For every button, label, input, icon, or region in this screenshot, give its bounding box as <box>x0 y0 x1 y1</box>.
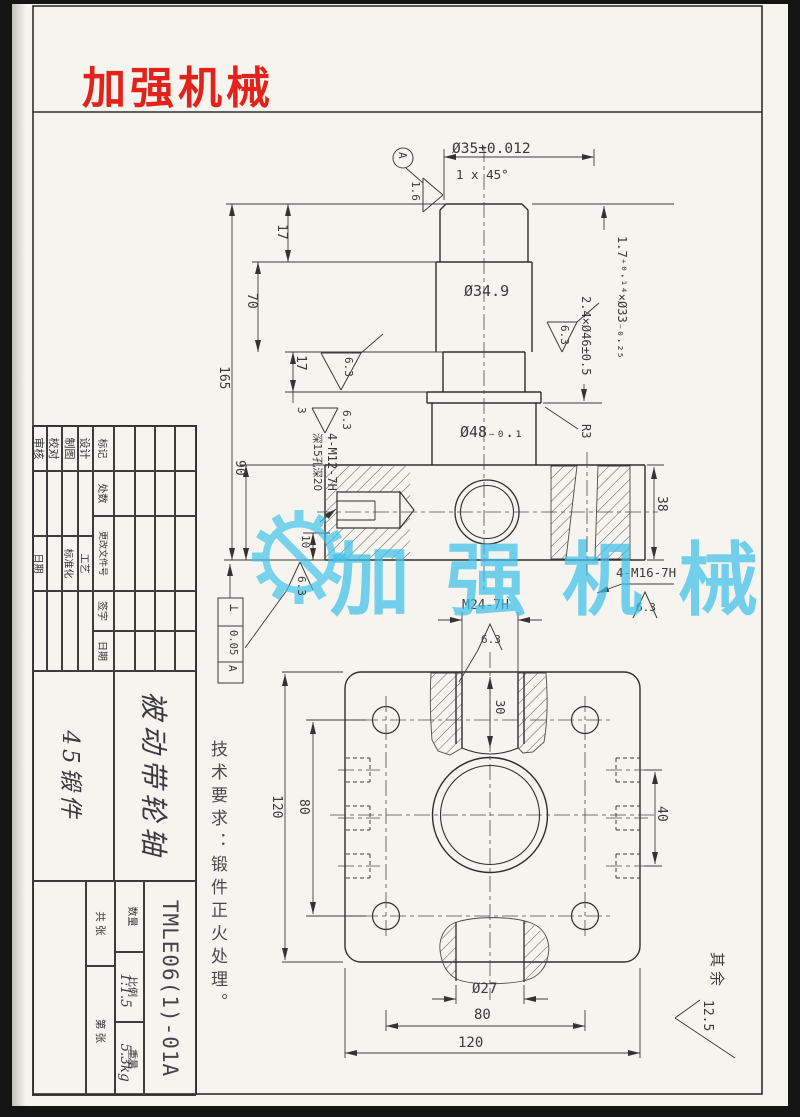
dim-chamfer: 1 x 45° <box>456 169 509 182</box>
title-block: 标记 处数 更改文件号 签字 日期 设计 工艺 制图 标准化 校对 审核 日期 … <box>33 425 197 1095</box>
technical-note: 技术要求：锻件正火处理。 <box>205 740 230 1040</box>
tolerance-datum: A <box>227 665 238 672</box>
rough-leader <box>245 590 287 648</box>
qty-label: 数量 <box>126 907 141 927</box>
dim-17-mid: 17 <box>294 355 307 371</box>
table-cell <box>32 471 47 536</box>
table-cell <box>175 591 196 631</box>
dim-3: 3 <box>296 407 307 414</box>
table-cell <box>175 631 196 671</box>
table-cell <box>114 426 135 471</box>
table-cell <box>32 591 47 671</box>
r3-leader <box>545 407 578 429</box>
rest-roughness-label: 其余 <box>709 952 724 990</box>
table-cell <box>155 471 175 516</box>
dim-30: 30 <box>494 700 506 714</box>
dim-17-top: 17 <box>275 224 288 240</box>
roughness-value: 6.3 <box>296 576 307 596</box>
rev-label: 标记 <box>93 426 114 471</box>
dim-dia349: Ø34.9 <box>464 284 509 299</box>
table-cell <box>155 516 175 591</box>
part-name: 被动带轮轴 <box>114 671 196 881</box>
symbols-bottom <box>478 624 735 1058</box>
table-cell <box>32 881 86 1096</box>
roughness-value: 1.6 <box>410 181 421 201</box>
material: 45锻件 <box>32 671 114 881</box>
sheet-no-cell: 第 张 <box>86 966 115 1096</box>
table-cell <box>114 591 135 631</box>
table-cell <box>175 471 196 516</box>
dim-10: 10 <box>300 535 311 548</box>
scale-cell: 比例 1:1.5 <box>115 952 144 1022</box>
bottom-view <box>345 672 640 984</box>
sig-label: 制图 <box>62 426 78 471</box>
dim-120-bottom: 120 <box>458 1036 483 1050</box>
thread-m12: 4-M12-7H <box>326 433 338 491</box>
thread-m12-note: 深15孔深20 <box>312 433 323 491</box>
dim-38: 38 <box>655 496 668 512</box>
table-cell <box>114 516 135 591</box>
dim-r3: R3 <box>580 424 592 438</box>
table-cell <box>47 591 62 671</box>
sig-label: 设计 <box>78 426 93 471</box>
dim-80-bottom: 80 <box>474 1008 491 1022</box>
roughness-value: 6.3 <box>559 325 570 345</box>
roughness-value: 6.3 <box>343 357 354 377</box>
dim-groove17: 1.7⁺⁰·¹⁴×Ø33₋₀.₂₅ <box>616 236 628 359</box>
scale-value: 1:1.5 <box>117 973 133 1008</box>
datum-label: A <box>397 152 408 159</box>
front-view <box>325 204 645 560</box>
m24-breakout <box>430 673 547 755</box>
table-cell <box>62 471 78 536</box>
table-cell <box>155 591 175 631</box>
roughness-value: 6.3 <box>481 634 501 645</box>
table-cell <box>78 591 93 671</box>
tolerance-symbol: ⊥ <box>227 604 240 612</box>
weight-value: 5.3kg <box>117 1043 133 1081</box>
table-cell <box>114 471 135 516</box>
bore-breakout <box>440 918 549 984</box>
dim-120-left: 120 <box>270 795 283 818</box>
table-cell <box>62 591 78 671</box>
scanned-drawing-page: Ø35±0.012 1 x 45° A 1.6 17 70 165 17 3 9… <box>0 0 800 1117</box>
dim-dia27: Ø27 <box>472 982 497 996</box>
sig-label: 工艺 <box>78 536 93 591</box>
table-cell <box>175 426 196 471</box>
dim-80-left: 80 <box>297 799 310 815</box>
dim-dia35: Ø35±0.012 <box>452 142 531 157</box>
sig-label: 标准化 <box>62 536 78 591</box>
roughness-icon <box>312 408 338 433</box>
table-cell <box>155 631 175 671</box>
table-cell <box>135 591 155 631</box>
company-logo: 加强机械 <box>82 52 274 116</box>
dim-dia48: Ø48₋₀.₁ <box>460 425 523 440</box>
sig-label <box>47 536 62 591</box>
rev-label: 日期 <box>93 631 114 671</box>
table-cell <box>78 471 93 536</box>
roughness-icon <box>423 178 443 212</box>
sheet-total-cell: 共 张 <box>86 881 115 966</box>
dim-70: 70 <box>245 293 258 309</box>
sig-label: 审核 <box>32 426 47 471</box>
sig-label: 校对 <box>47 426 62 471</box>
table-cell <box>135 631 155 671</box>
table-cell <box>175 516 196 591</box>
rev-label: 处数 <box>93 471 114 516</box>
side-holes <box>346 758 640 878</box>
qty-cell: 数量 <box>115 881 144 952</box>
sig-label: 日期 <box>32 536 47 591</box>
drawing-number: TMLE06(1)-01A <box>144 881 196 1096</box>
dim-165: 165 <box>217 366 230 389</box>
rev-label: 签字 <box>93 591 114 631</box>
table-cell <box>47 471 62 536</box>
table-cell <box>135 471 155 516</box>
table-cell <box>135 426 155 471</box>
roughness-value: 6.3 <box>341 410 352 430</box>
watermark-text: 加强机械 <box>330 516 794 632</box>
table-cell <box>155 426 175 471</box>
dim-90: 90 <box>233 460 246 476</box>
table-cell <box>135 516 155 591</box>
rev-label: 更改文件号 <box>93 516 114 591</box>
table-cell <box>114 631 135 671</box>
weight-cell: 重量 5.3kg <box>115 1022 144 1096</box>
dim-groove24: 2.4×Ø46±0.5 <box>580 296 592 375</box>
rest-roughness-value: 12.5 <box>701 1000 714 1031</box>
dim-40: 40 <box>655 806 668 822</box>
tolerance-value: 0.05 <box>228 630 239 655</box>
